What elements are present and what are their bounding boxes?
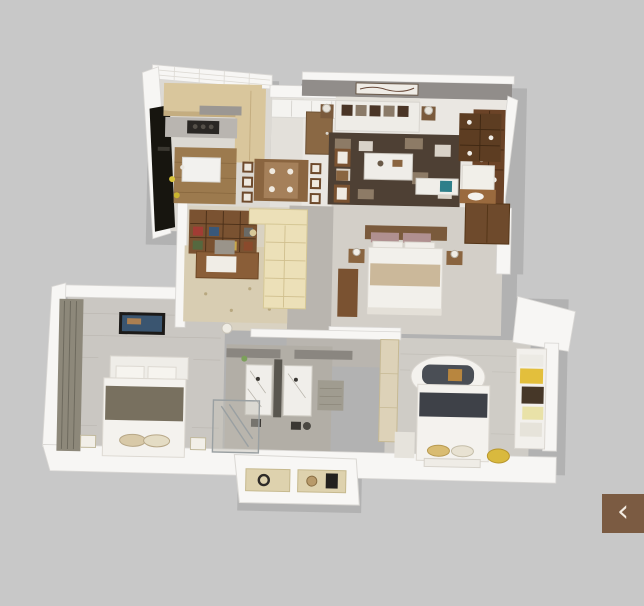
seat-cushion-top bbox=[519, 354, 543, 366]
wood-armchairs bbox=[334, 148, 351, 202]
kitchen-island bbox=[182, 157, 220, 182]
teal-pillow bbox=[440, 181, 452, 192]
front-display-niche bbox=[233, 454, 360, 505]
yellow-pouf bbox=[487, 449, 509, 463]
master-bed-throw bbox=[370, 263, 440, 286]
cream-pillow bbox=[451, 446, 473, 457]
nightstand-lamp-left bbox=[353, 248, 360, 255]
sofa-pillows bbox=[341, 105, 408, 117]
apartment bbox=[41, 63, 580, 518]
headboard-gold-emblem bbox=[448, 369, 462, 381]
shower-tray bbox=[212, 400, 259, 453]
foot-cushion-right bbox=[143, 435, 169, 448]
lamp-right bbox=[424, 106, 432, 114]
bedside-stool-right bbox=[190, 438, 205, 450]
brown-pillow bbox=[521, 386, 543, 403]
lamp-left bbox=[323, 104, 331, 112]
bedroom2-throw bbox=[105, 386, 184, 422]
bath-rug bbox=[317, 380, 344, 411]
foot-bench bbox=[424, 458, 480, 467]
floor-vase bbox=[222, 323, 232, 333]
cream-shelf-top bbox=[249, 209, 307, 225]
wall-art bbox=[356, 83, 418, 95]
range-hood bbox=[199, 106, 241, 116]
gold-pillow bbox=[427, 445, 449, 456]
bedroom2-pillow-left bbox=[116, 366, 144, 379]
master-tall-cabinet bbox=[337, 269, 358, 317]
viewer-stage: ‹ bbox=[0, 0, 644, 606]
carousel-prev-button[interactable]: ‹ bbox=[602, 494, 644, 533]
bedroom2-pillow-right bbox=[148, 367, 176, 380]
bedroom3-side-rug bbox=[394, 432, 415, 458]
vanity-stool-right bbox=[291, 422, 301, 430]
coffee-table bbox=[364, 153, 413, 180]
bedside-stool-left bbox=[80, 435, 95, 447]
yellow-pillow bbox=[520, 368, 543, 383]
bedroom3-navy-band bbox=[419, 392, 487, 417]
desk-chair bbox=[215, 240, 235, 254]
desk-blotter bbox=[206, 256, 236, 273]
pale-yellow-pillow bbox=[522, 406, 543, 419]
bathroom-partition bbox=[273, 359, 282, 417]
niche-shelf-right bbox=[298, 470, 346, 493]
floorplan-3d-render bbox=[0, 0, 644, 606]
decor-frame bbox=[326, 473, 338, 488]
bathroom-wall-cap-left bbox=[226, 348, 280, 358]
dining-table-runner bbox=[264, 162, 299, 199]
decor-bowl bbox=[307, 476, 317, 486]
bathroom-wall-cap-right bbox=[294, 350, 352, 360]
nightstand-lamp-right bbox=[451, 250, 458, 257]
bedroom3-closet bbox=[379, 339, 399, 441]
foot-cushion-left bbox=[119, 434, 145, 447]
vanity-right bbox=[283, 365, 312, 416]
black-wall-reveal bbox=[158, 147, 170, 151]
chevron-left-icon: ‹ bbox=[617, 497, 629, 527]
seat-cushion-bottom bbox=[520, 422, 542, 436]
